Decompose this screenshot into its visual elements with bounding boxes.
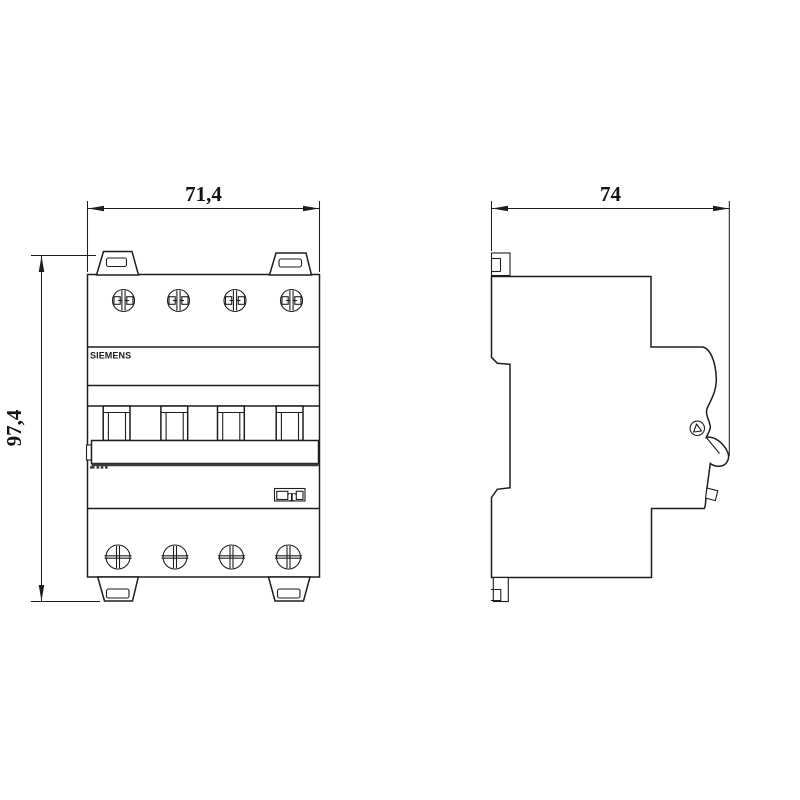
side-view: 74 — [491, 182, 730, 602]
dim-arrow-left-icon — [88, 206, 104, 212]
dim-arrow-up-icon — [39, 256, 45, 272]
triangle-mark-icon — [694, 424, 702, 432]
height-dimension: 97,4 — [2, 256, 100, 602]
terminal-screw — [275, 545, 302, 569]
dim-arrow-right-icon — [303, 206, 319, 212]
toggle-switch — [161, 406, 188, 441]
toggle-switch — [276, 406, 303, 441]
bottom-mounting-tab-right — [269, 577, 311, 601]
front-view: 71,4 97,4 — [2, 182, 320, 602]
width-dim-label: 71,4 — [185, 182, 222, 206]
toggle-switch — [218, 406, 245, 441]
test-button: T — [275, 489, 306, 504]
top-mounting-tab-right — [270, 253, 312, 275]
terminal-screw — [168, 290, 190, 312]
top-mounting-tab-left — [97, 252, 139, 276]
dim-arrow-right-icon — [713, 206, 729, 212]
side-top-terminal — [492, 253, 511, 276]
side-indicator — [690, 421, 704, 435]
bottom-terminal-screws — [105, 545, 303, 569]
tab-slot — [107, 258, 127, 267]
technical-drawing: 71,4 97,4 — [0, 0, 800, 800]
depth-dim-label: 74 — [600, 182, 622, 206]
dim-arrow-left-icon — [492, 206, 508, 212]
terminal-screw — [224, 290, 246, 312]
toggle-switches — [103, 406, 303, 441]
dim-arrow-down-icon — [39, 585, 45, 601]
top-terminal-screws — [113, 290, 303, 312]
terminal-screw — [162, 545, 189, 569]
bottom-mounting-tab-left — [98, 577, 139, 601]
front-foot — [706, 488, 718, 501]
terminal-screw — [105, 545, 132, 569]
terminal-screw — [218, 545, 245, 569]
depth-dimension: 74 — [492, 182, 730, 456]
side-bottom-terminal — [491, 578, 509, 602]
terminal-screw — [113, 290, 135, 312]
tab-slot — [278, 589, 301, 598]
test-button-label: T — [288, 491, 296, 503]
tiny-marks — [90, 466, 108, 468]
brand-label: SIEMENS — [90, 351, 131, 361]
side-profile — [492, 277, 729, 578]
height-dim-label: 97,4 — [2, 409, 26, 446]
tab-slot — [107, 589, 130, 598]
terminal-screw — [281, 290, 303, 312]
tab-slot — [279, 259, 302, 267]
breaker-dimension-diagram: 71,4 97,4 — [0, 0, 800, 800]
toggle-switch — [103, 406, 130, 441]
rocker-bar — [87, 441, 319, 469]
